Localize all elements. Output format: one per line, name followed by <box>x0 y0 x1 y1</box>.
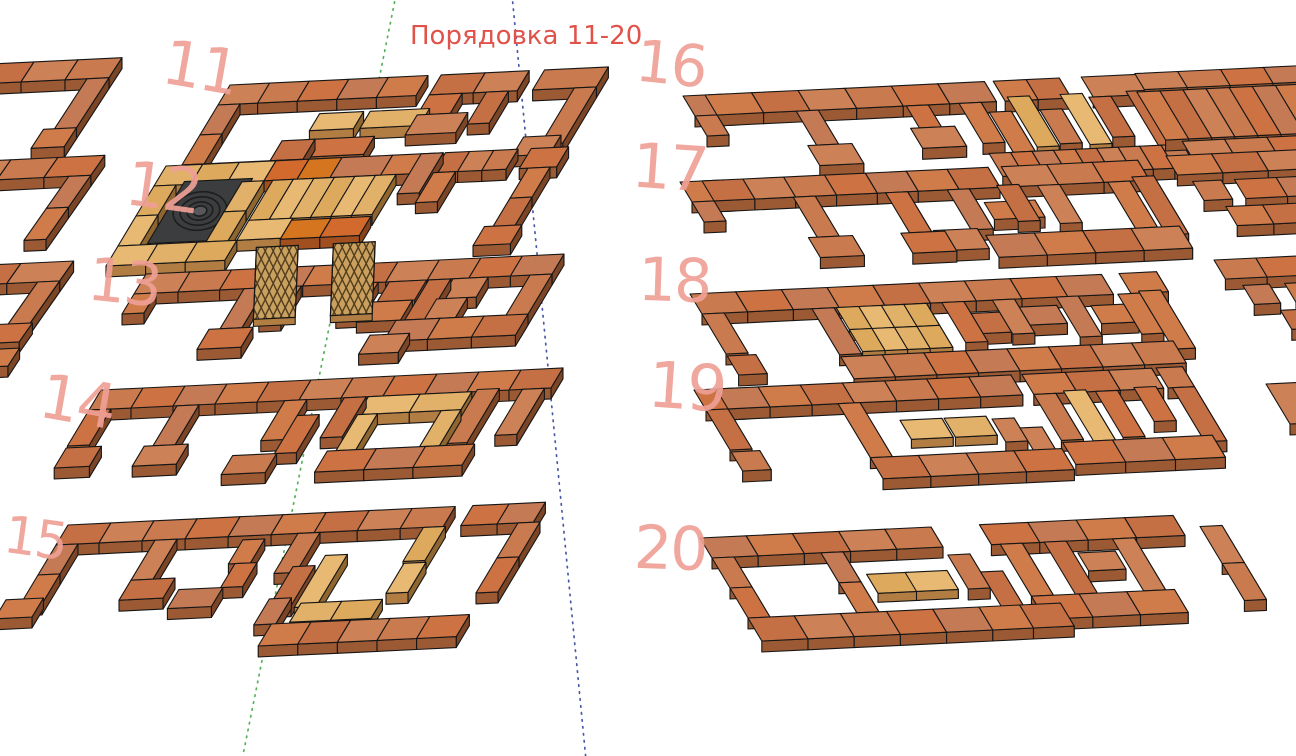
course-19-group <box>694 367 1227 490</box>
sheet-title: Порядовка 11-20 <box>410 21 650 51</box>
course-20-group <box>700 515 1266 652</box>
partial-left-3-group <box>0 261 74 363</box>
partial-right-2-group <box>1166 150 1296 237</box>
partial-right-4-group <box>1266 382 1296 435</box>
course-15-group <box>0 502 545 657</box>
partial-right-3-group <box>1214 256 1296 340</box>
course-label-12: 12 <box>122 155 204 221</box>
course-14-group <box>54 368 563 486</box>
course-label-17: 17 <box>630 137 709 198</box>
course-label-18: 18 <box>637 253 711 309</box>
sketchup-viewport[interactable]: Порядовка 11-20 11121314151617181920 <box>0 0 1296 756</box>
partial-left-4-group <box>0 348 20 407</box>
course-label-16: 16 <box>633 34 708 93</box>
course-label-14: 14 <box>36 368 119 436</box>
course-label-11: 11 <box>159 34 242 102</box>
course-17-group <box>680 160 1193 268</box>
course-label-13: 13 <box>85 252 163 313</box>
partial-left-2-group <box>0 155 105 251</box>
course-label-15: 15 <box>1 512 69 567</box>
partial-left-1-group <box>0 58 122 166</box>
course-label-20: 20 <box>633 521 707 577</box>
course-label-19: 19 <box>646 357 727 420</box>
